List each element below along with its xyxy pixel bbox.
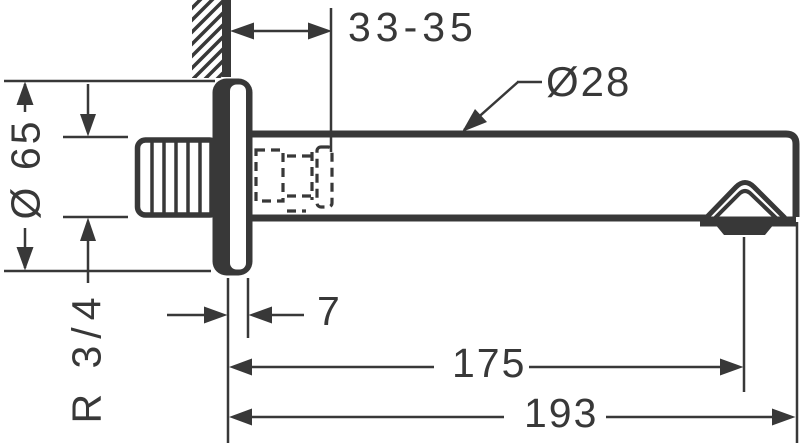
dim-escutcheon-depth: [167, 307, 304, 324]
spray-former-inner: [715, 191, 776, 218]
arrowhead: [308, 23, 332, 40]
escutcheon: [213, 79, 253, 276]
arrowhead: [204, 307, 228, 324]
arrowhead: [230, 23, 254, 40]
arrowhead: [17, 247, 34, 271]
wall-face-line: [222, 0, 231, 77]
total-length-label: 193: [524, 393, 598, 434]
arrowhead: [80, 218, 96, 242]
spout-diameter-label: Ø28: [546, 61, 631, 103]
length-to-outlet-label: 175: [452, 343, 526, 384]
arrowhead: [229, 409, 252, 426]
outlet-face: [700, 217, 796, 227]
arrowhead: [229, 359, 252, 376]
drawing-geometry: [0, 0, 802, 444]
spout-outlet: [700, 183, 796, 236]
technical-drawing-canvas: 33-35 Ø28 Ø 65 R 3/4 7 175 193: [0, 0, 802, 444]
arrowhead: [772, 409, 796, 426]
arrowhead: [17, 82, 34, 106]
dim-wall-clearance: [230, 23, 332, 40]
connection-thread-label: R 3/4: [67, 291, 108, 424]
hidden-connector: [256, 147, 332, 211]
dim-connection-thread: [80, 84, 96, 283]
arrowhead: [720, 359, 744, 376]
wall-clearance-label: 33-35: [348, 7, 478, 48]
outlet-ring: [717, 227, 772, 236]
escutcheon-depth-label: 7: [317, 291, 340, 332]
leader-spout-diameter: [462, 82, 542, 132]
extension-lines: [4, 8, 797, 443]
dim-total-length: [229, 409, 796, 426]
arrowhead: [80, 114, 96, 137]
arrowhead: [249, 307, 273, 324]
thread-nipple: [138, 140, 218, 215]
escutcheon-diameter-label: Ø 65: [6, 119, 47, 220]
